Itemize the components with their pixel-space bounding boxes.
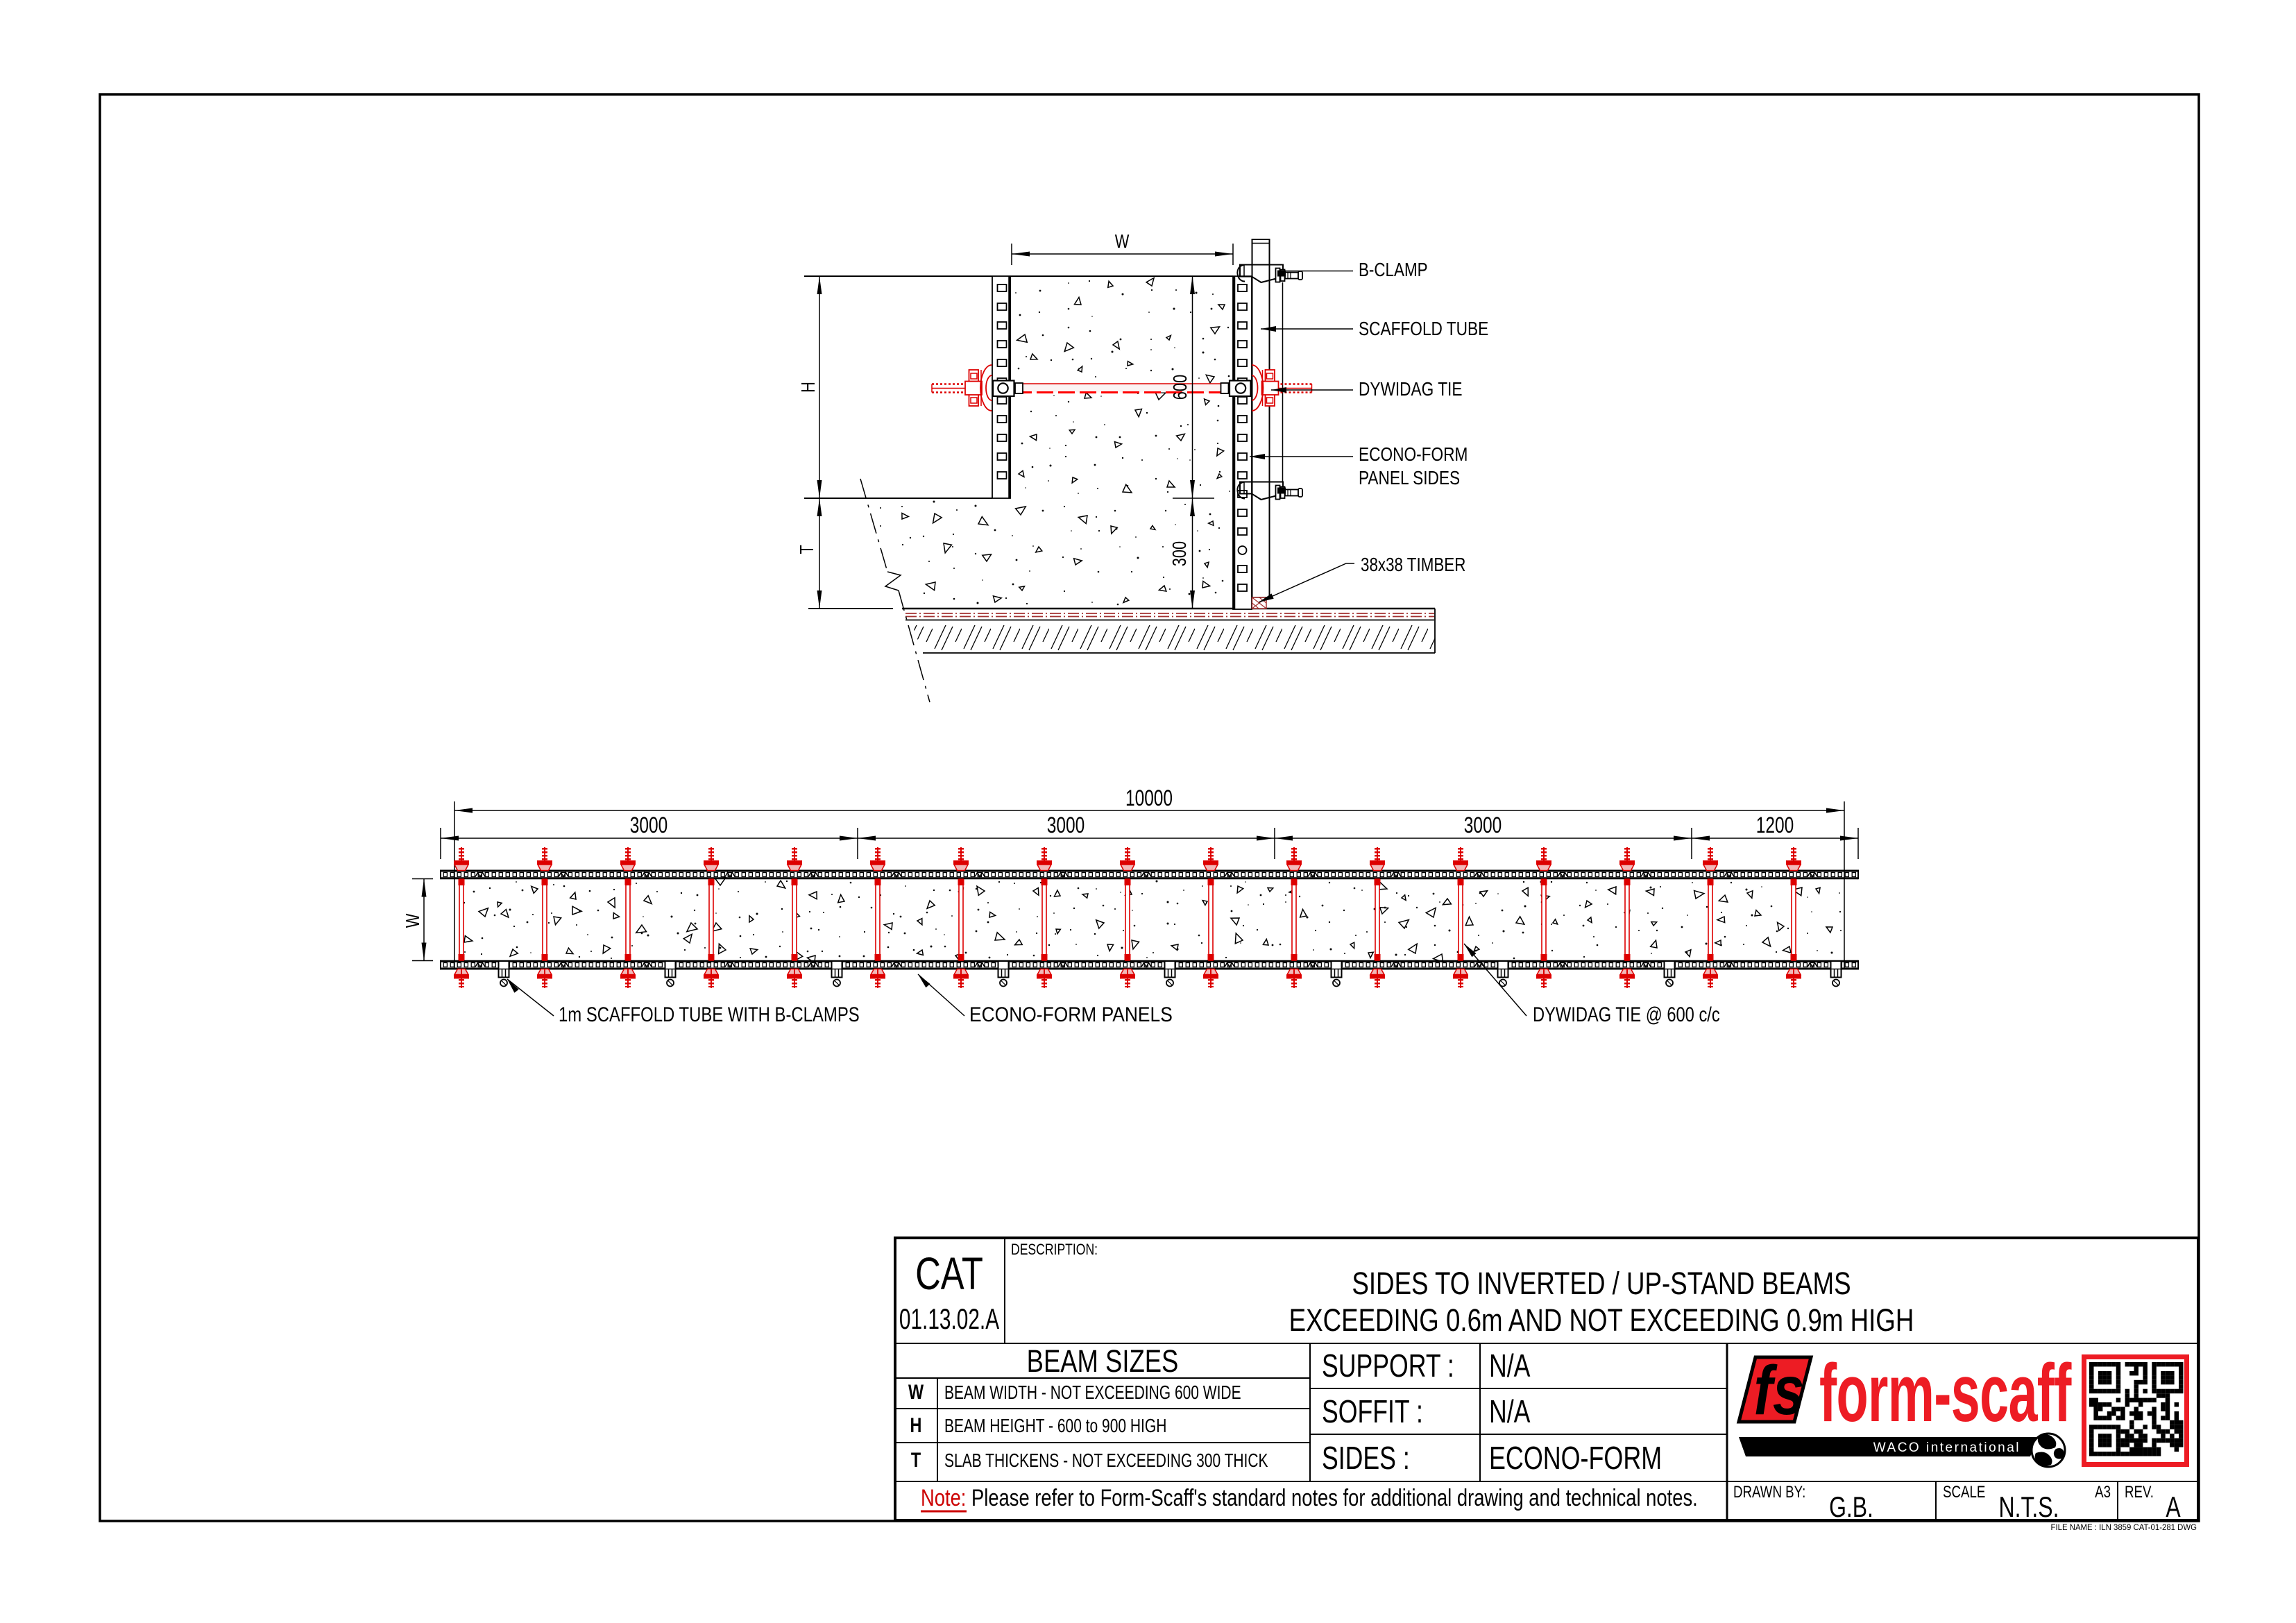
svg-text:T: T: [911, 1448, 921, 1471]
svg-text:10000: 10000: [1125, 786, 1173, 811]
svg-text:N.T.S.: N.T.S.: [1999, 1490, 2059, 1523]
svg-text:300: 300: [1168, 541, 1190, 566]
svg-text:DYWIDAG TIE: DYWIDAG TIE: [1359, 379, 1462, 400]
svg-text:form-scaff: form-scaff: [1819, 1347, 2072, 1438]
svg-text:1m SCAFFOLD TUBE WITH B-CLAMPS: 1m SCAFFOLD TUBE WITH B-CLAMPS: [559, 1002, 860, 1026]
svg-text:SCAFFOLD TUBE: SCAFFOLD TUBE: [1359, 318, 1488, 340]
svg-text:DESCRIPTION:: DESCRIPTION:: [1011, 1241, 1098, 1258]
svg-text:SIDES :: SIDES :: [1322, 1441, 1410, 1476]
svg-text:A: A: [2166, 1490, 2180, 1523]
svg-text:W: W: [1115, 230, 1130, 252]
svg-text:SLAB THICKENS - NOT EXCEEDING: SLAB THICKENS - NOT EXCEEDING 300 THICK: [944, 1450, 1268, 1472]
svg-text:BEAM HEIGHT - 600 to 900 HIGH: BEAM HEIGHT - 600 to 900 HIGH: [944, 1416, 1166, 1437]
svg-text:600: 600: [1169, 375, 1191, 400]
svg-text:G.B.: G.B.: [1829, 1490, 1873, 1523]
svg-text:DYWIDAG TIE @ 600 c/c: DYWIDAG TIE @ 600 c/c: [1533, 1003, 1720, 1026]
svg-text:BEAM WIDTH - NOT EXCEEDING 600: BEAM WIDTH - NOT EXCEEDING 600 WIDE: [944, 1382, 1241, 1404]
svg-text:FILE NAME : ILN 3859 CAT-01-28: FILE NAME : ILN 3859 CAT-01-281 DWG: [2051, 1523, 2197, 1532]
svg-text:H: H: [797, 382, 819, 393]
svg-text:3000: 3000: [1047, 813, 1085, 838]
svg-text:ECONO-FORM: ECONO-FORM: [1489, 1441, 1662, 1476]
svg-text:SIDES TO INVERTED / UP-STAND B: SIDES TO INVERTED / UP-STAND BEAMS: [1352, 1266, 1851, 1300]
svg-text:ECONO-FORM: ECONO-FORM: [1359, 444, 1468, 466]
svg-text:WACO international: WACO international: [1873, 1441, 2021, 1455]
svg-text:SCALE: SCALE: [1943, 1483, 1985, 1502]
svg-text:Note:: Note:: [921, 1484, 966, 1511]
svg-text:N/A: N/A: [1489, 1348, 1531, 1384]
svg-text:38x38 TIMBER: 38x38 TIMBER: [1361, 554, 1465, 576]
svg-text:EXCEEDING 0.6m AND NOT EXCEEDI: EXCEEDING 0.6m AND NOT EXCEEDING 0.9m HI…: [1289, 1302, 1914, 1337]
svg-text:3000: 3000: [1464, 813, 1502, 838]
svg-text:Please refer to Form-Scaff's s: Please refer to Form-Scaff's standard no…: [971, 1484, 1698, 1511]
svg-text:ECONO-FORM PANELS: ECONO-FORM PANELS: [969, 1002, 1173, 1026]
svg-text:SUPPORT :: SUPPORT :: [1322, 1348, 1454, 1384]
svg-text:N/A: N/A: [1489, 1394, 1531, 1429]
svg-text:fs: fs: [1754, 1352, 1805, 1429]
svg-text:REV.: REV.: [2125, 1483, 2154, 1502]
svg-text:1200: 1200: [1756, 813, 1794, 838]
svg-text:SOFFIT :: SOFFIT :: [1322, 1394, 1423, 1429]
svg-text:A3: A3: [2095, 1483, 2111, 1502]
svg-text:T: T: [796, 545, 817, 554]
svg-text:B-CLAMP: B-CLAMP: [1359, 260, 1428, 281]
svg-text:3000: 3000: [630, 813, 667, 838]
svg-text:BEAM SIZES: BEAM SIZES: [1027, 1343, 1179, 1379]
svg-text:W: W: [402, 913, 423, 928]
svg-text:PANEL SIDES: PANEL SIDES: [1359, 468, 1460, 489]
svg-text:CAT: CAT: [915, 1249, 983, 1300]
svg-text:DRAWN BY:: DRAWN BY:: [1733, 1483, 1805, 1502]
svg-text:H: H: [910, 1413, 922, 1436]
svg-text:01.13.02.A: 01.13.02.A: [899, 1302, 1000, 1335]
svg-text:W: W: [908, 1380, 924, 1403]
